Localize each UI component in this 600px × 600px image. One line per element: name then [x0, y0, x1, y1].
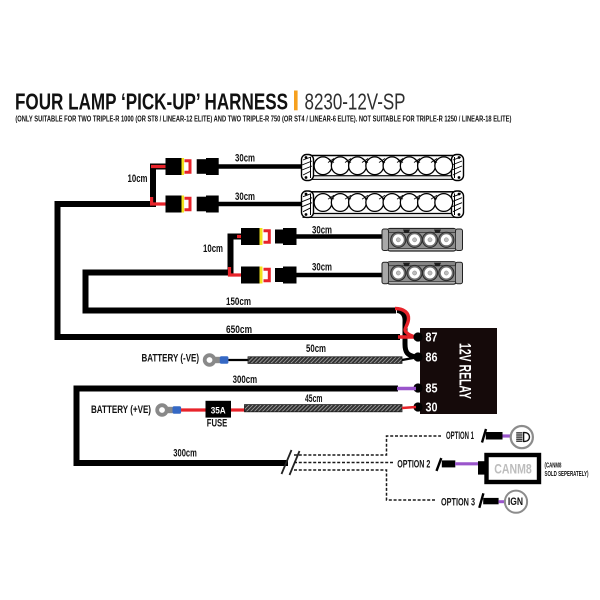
svg-text:87: 87: [426, 330, 438, 345]
svg-text:CANM8: CANM8: [494, 461, 532, 476]
svg-text:SOLD SEPERATELY): SOLD SEPERATELY): [545, 471, 589, 478]
svg-text:86: 86: [426, 350, 438, 365]
svg-text:(CANM8: (CANM8: [545, 462, 562, 469]
svg-text:FOUR LAMP ‘PICK-UP’ HARNESS: FOUR LAMP ‘PICK-UP’ HARNESS: [15, 89, 288, 115]
svg-text:OPTION 2: OPTION 2: [397, 458, 430, 470]
svg-text:OPTION 3: OPTION 3: [441, 496, 475, 508]
svg-text:150cm: 150cm: [226, 296, 251, 308]
svg-text:BATTERY (+VE): BATTERY (+VE): [91, 404, 151, 416]
svg-text:8230-12V-SP: 8230-12V-SP: [305, 89, 406, 115]
svg-text:10cm: 10cm: [203, 243, 223, 255]
svg-text:12V RELAY: 12V RELAY: [456, 343, 475, 399]
svg-text:35A: 35A: [211, 406, 226, 417]
svg-text:300cm: 300cm: [173, 448, 197, 460]
svg-text:85: 85: [426, 381, 438, 396]
svg-text:(ONLY SUITABLE FOR TWO TRIPLE-: (ONLY SUITABLE FOR TWO TRIPLE-R 1000 (OR…: [15, 115, 511, 124]
svg-text:45cm: 45cm: [305, 393, 323, 405]
svg-text:650cm: 650cm: [226, 324, 252, 336]
svg-text:30cm: 30cm: [235, 153, 255, 165]
svg-text:30: 30: [426, 400, 438, 415]
svg-text:10cm: 10cm: [128, 173, 148, 185]
svg-text:300cm: 300cm: [233, 374, 258, 386]
svg-text:IGN: IGN: [508, 496, 523, 508]
svg-text:30cm: 30cm: [312, 225, 332, 237]
svg-text:30cm: 30cm: [312, 262, 332, 274]
svg-text:OPTION 1: OPTION 1: [446, 430, 474, 442]
svg-text:30cm: 30cm: [235, 191, 255, 203]
svg-text:FUSE: FUSE: [207, 418, 228, 430]
svg-text:50cm: 50cm: [306, 343, 326, 355]
svg-text:BATTERY (-VE): BATTERY (-VE): [142, 352, 200, 364]
